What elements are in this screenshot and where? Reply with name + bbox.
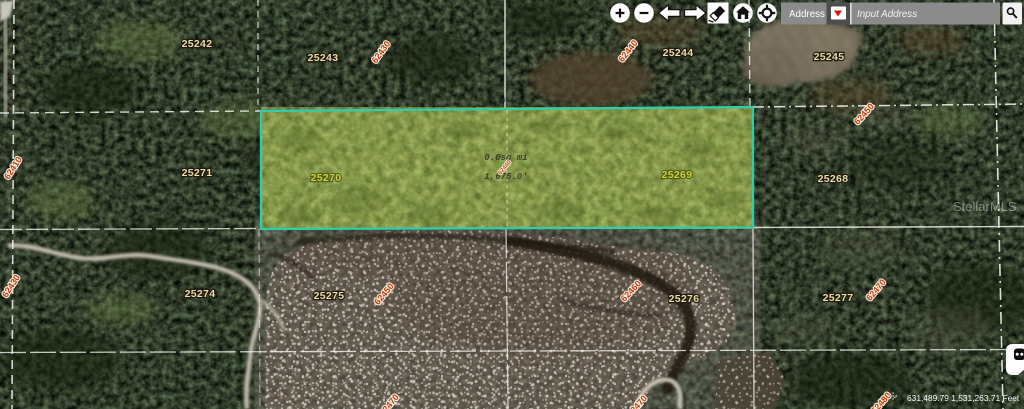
svg-text:Input Address: Input Address (857, 9, 917, 20)
svg-text:25242: 25242 (182, 38, 213, 50)
svg-text:25243: 25243 (308, 52, 339, 64)
svg-text:631,489.79 1,531,263.71 Feet: 631,489.79 1,531,263.71 Feet (907, 393, 1020, 403)
svg-text:Address: Address (789, 9, 825, 20)
svg-text:25245: 25245 (814, 51, 845, 63)
svg-text:N 89 2640.0: N 89 2640.0 (479, 97, 522, 104)
svg-text:25270: 25270 (311, 172, 342, 184)
svg-text:25275: 25275 (314, 290, 345, 302)
svg-text:1,675.0': 1,675.0' (484, 172, 527, 182)
svg-text:25274: 25274 (185, 288, 216, 300)
svg-text:25244: 25244 (663, 47, 694, 59)
svg-text:25269: 25269 (662, 169, 693, 181)
svg-text:25277: 25277 (823, 292, 854, 304)
svg-text:25271: 25271 (182, 167, 213, 179)
svg-text:StellarMLS: StellarMLS (953, 199, 1017, 214)
svg-text:2,642.5: 2,642.5 (243, 154, 251, 186)
svg-text:25276: 25276 (669, 293, 700, 305)
svg-text:25268: 25268 (818, 173, 849, 185)
